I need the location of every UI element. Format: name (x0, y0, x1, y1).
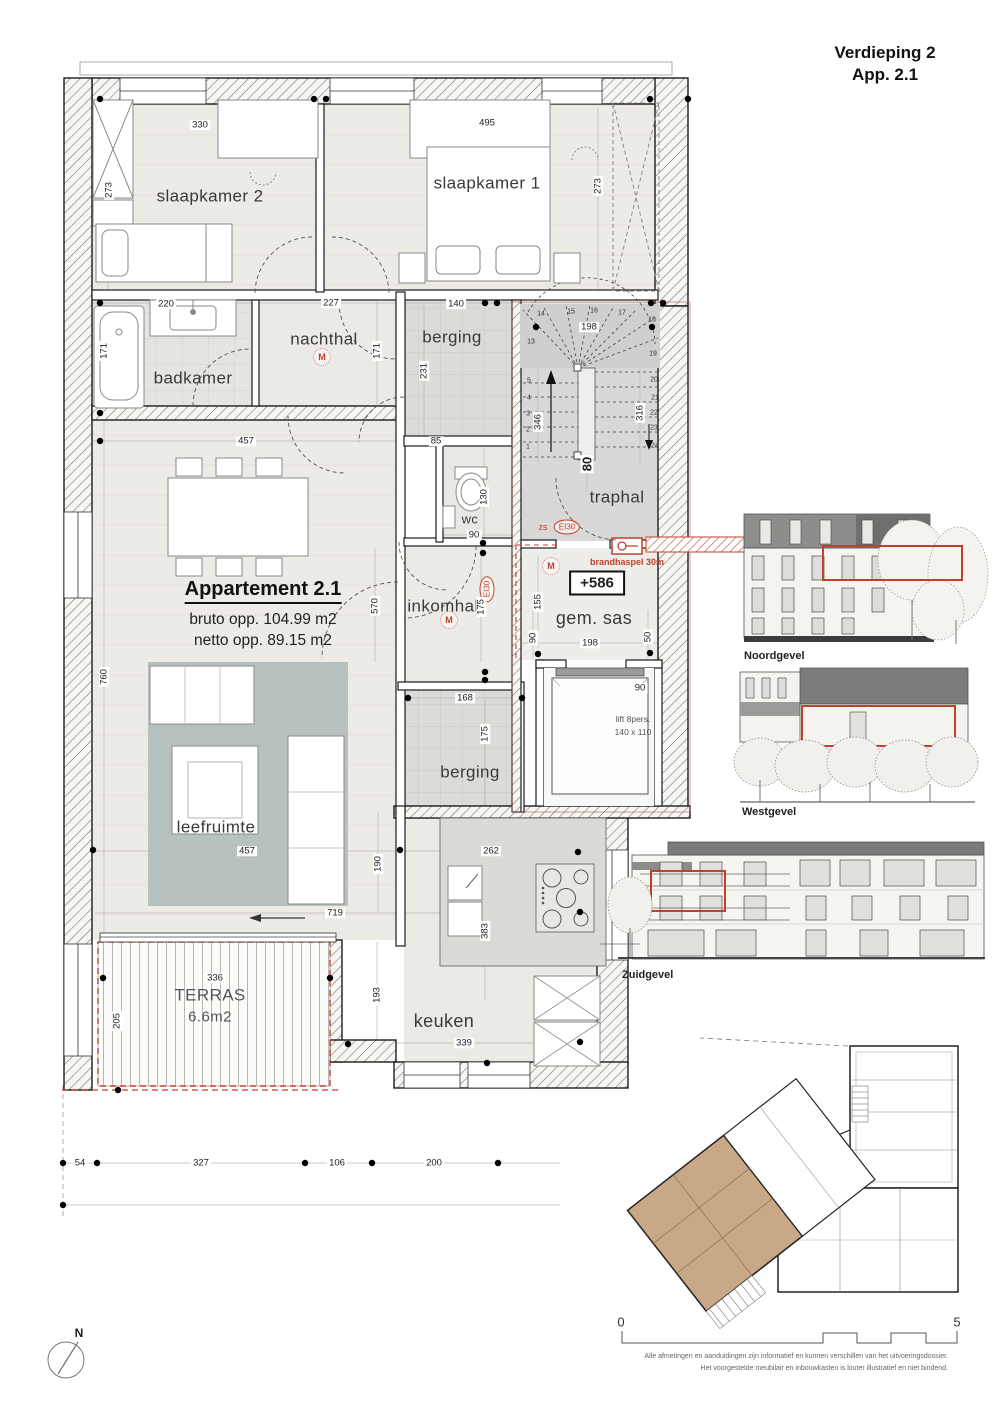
dim-label: 327 (191, 1158, 211, 1168)
lift-label: lift 8pers. (616, 714, 651, 724)
dim-label: 570 (370, 596, 380, 616)
dim-label: 457 (237, 846, 257, 856)
living-furniture (148, 662, 348, 906)
dim-label: 205 (112, 1011, 122, 1031)
dim-label: 85 (429, 436, 444, 446)
room-label-slaapkamer1: slaapkamer 1 (434, 175, 541, 192)
dim-label: 346 (533, 412, 543, 432)
north-arrow-icon (48, 1342, 84, 1378)
dim-label: 457 (236, 436, 256, 446)
dim-label: 190 (373, 854, 383, 874)
brandhaspel-label: brandhaspel 30m (590, 557, 664, 567)
drawing-sheet: Verdieping 2 App. 2.1 Appartement 2.1 br… (0, 0, 1007, 1425)
m-marker-icon: M (542, 557, 560, 575)
dim-label: 198 (579, 322, 599, 332)
stair-number: 24 (651, 443, 659, 450)
elevation-zuidgevel (600, 842, 985, 959)
stair-number: 22 (650, 410, 658, 417)
dim-label: 50 (643, 630, 653, 645)
dim-label: 130 (479, 487, 489, 507)
room-label-leefruimte: leefruimte (177, 819, 256, 836)
dim-label: 193 (372, 985, 382, 1005)
stair-number: 17 (618, 310, 626, 317)
stair-number: 19 (649, 351, 657, 358)
stair-number: 2 (526, 427, 530, 434)
stair-number: 18 (648, 317, 656, 324)
room-label-traphal: traphal (590, 489, 645, 506)
title-line1: Verdieping 2 (800, 42, 970, 64)
dim-label: 719 (325, 908, 345, 918)
dim-label: 339 (454, 1038, 474, 1048)
dim-label: 273 (593, 176, 603, 196)
room-label-berging-bottom: berging (440, 764, 500, 781)
scale-start: 0 (617, 1315, 624, 1330)
stair-number: 1 (526, 444, 530, 451)
elevation-label-noordgevel: Noordgevel (744, 650, 805, 662)
stair-number: 5 (527, 378, 531, 385)
roof-edge (80, 62, 672, 75)
dim-label: 80 (581, 455, 594, 473)
apartment-name: Appartement 2.1 (185, 578, 342, 604)
dim-label: 330 (190, 120, 210, 130)
dim-label: 200 (424, 1158, 444, 1168)
stair-number: 13 (527, 339, 535, 346)
stair-number: 21 (651, 395, 659, 402)
dim-label: 495 (477, 118, 497, 128)
room-label-gem-sas: gem. sas (556, 609, 632, 627)
dim-label: 383 (480, 921, 490, 941)
disclaimer: Alle afmetingen en aanduidingen zijn inf… (428, 1351, 948, 1374)
dim-label: 220 (156, 299, 176, 309)
stair-number: 3 (526, 411, 530, 418)
dim-label: 175 (480, 724, 490, 744)
floorplan-drawing (0, 0, 1007, 1425)
zs-label: zs (539, 522, 548, 532)
scale-end: 5 (953, 1315, 960, 1330)
disclaimer-line1: Alle afmetingen en aanduidingen zijn inf… (428, 1351, 948, 1363)
dim-label: 168 (455, 693, 475, 703)
elevation-label-zuidgevel: Zuidgevel (622, 969, 673, 981)
dim-label: 175 (476, 597, 486, 617)
dim-label: 106 (327, 1158, 347, 1168)
dim-label: 90 (633, 683, 648, 693)
dim-label: 171 (99, 341, 109, 361)
lift-size-label: 140 x 110 (615, 727, 652, 737)
stair-number: 15 (567, 309, 575, 316)
dim-label: 316 (635, 403, 645, 423)
room-label-berging-top: berging (422, 329, 482, 346)
dim-label: 336 (205, 973, 225, 983)
dim-label: 262 (481, 846, 501, 856)
m-marker-icon: M (440, 611, 458, 629)
apartment-info: Appartement 2.1 bruto opp. 104.99 m2 net… (185, 578, 342, 650)
room-label-keuken: keuken (414, 1012, 474, 1030)
m-marker-icon: M (313, 348, 331, 366)
disclaimer-line2: Het voorgestelde meubilair en inbouwkast… (428, 1363, 948, 1375)
room-label-terras: TERRAS (174, 987, 245, 1004)
dim-label: 155 (533, 592, 543, 612)
apartment-bruto: bruto opp. 104.99 m2 (185, 611, 342, 629)
stair-number: 23 (650, 425, 658, 432)
elevation-noordgevel (744, 514, 988, 644)
stair-number: 4 (527, 395, 531, 402)
dim-label: 231 (419, 361, 429, 381)
elevation-label-westgevel: Westgevel (742, 806, 796, 818)
room-label-nachthal: nachthal (290, 331, 357, 348)
sheet-title: Verdieping 2 App. 2.1 (800, 42, 970, 86)
room-label-slaapkamer2: slaapkamer 2 (157, 188, 264, 205)
scale-bar (622, 1331, 957, 1343)
level-marker: +586 (569, 571, 625, 596)
room-label-badkamer: badkamer (154, 370, 233, 387)
room-label-wc: wc (462, 513, 479, 526)
dim-label: 227 (321, 298, 341, 308)
elevation-westgevel (734, 668, 978, 802)
north-label: N (75, 1326, 84, 1340)
dim-label: 198 (580, 638, 600, 648)
stair-number: 16 (590, 308, 598, 315)
dim-label: 760 (99, 667, 109, 687)
dim-label: 90 (467, 530, 482, 540)
dim-label: 140 (446, 299, 466, 309)
dim-label: 90 (528, 631, 538, 646)
dim-label: 54 (73, 1158, 88, 1168)
stair-number: 14 (537, 311, 545, 318)
title-line2: App. 2.1 (800, 64, 970, 86)
dim-label: 171 (372, 341, 382, 361)
dim-label: 273 (104, 180, 114, 200)
terras-area: 6.6m2 (188, 1010, 232, 1025)
stair-number: 20 (650, 377, 658, 384)
apartment-netto: netto opp. 89.15 m2 (185, 632, 342, 650)
key-plan (627, 1038, 958, 1329)
